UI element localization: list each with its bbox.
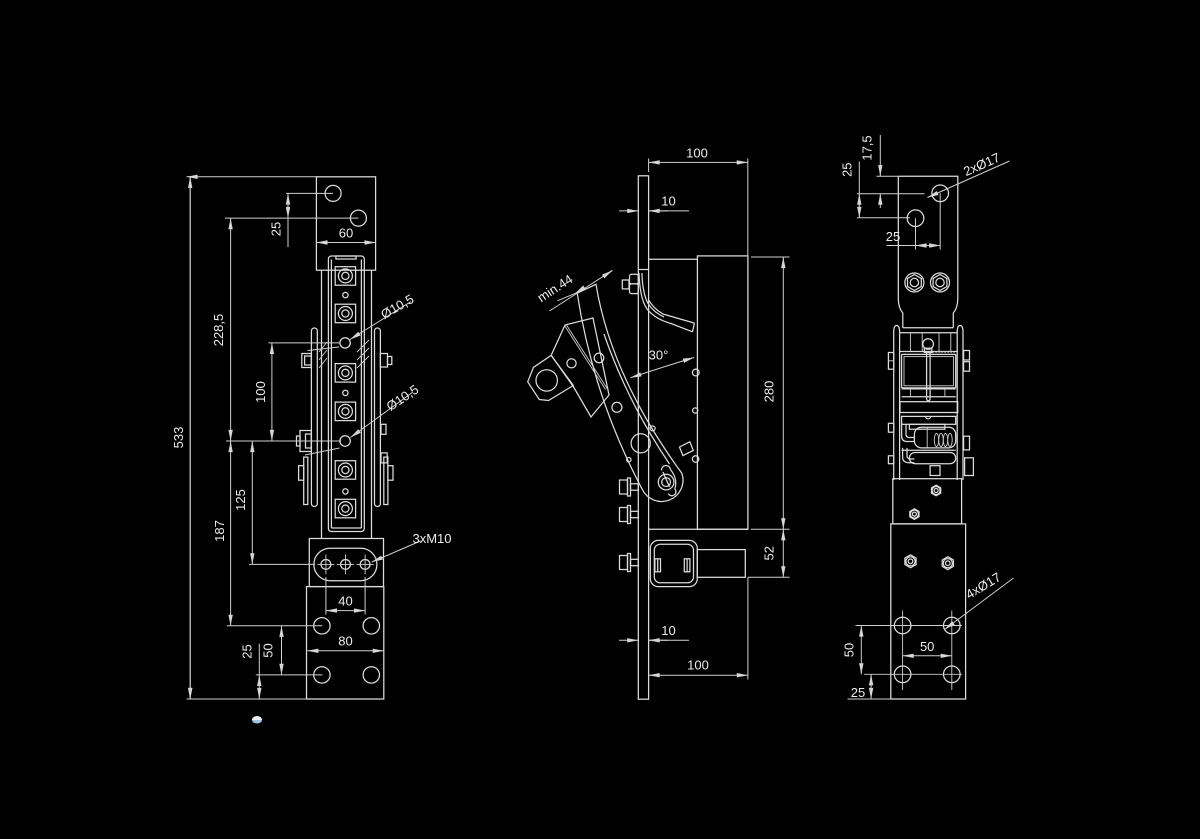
svg-text:17,5: 17,5 — [860, 135, 875, 160]
svg-text:25: 25 — [240, 644, 255, 658]
svg-text:50: 50 — [842, 643, 857, 657]
svg-text:30°: 30° — [649, 347, 669, 362]
svg-text:3xM10: 3xM10 — [412, 531, 451, 546]
svg-text:100: 100 — [253, 381, 268, 403]
svg-text:50: 50 — [920, 639, 934, 654]
svg-text:50: 50 — [261, 643, 276, 657]
svg-text:10: 10 — [661, 193, 675, 208]
svg-text:100: 100 — [687, 658, 709, 673]
svg-text:533: 533 — [171, 427, 186, 449]
svg-text:10: 10 — [661, 623, 675, 638]
svg-text:60: 60 — [339, 226, 353, 241]
svg-text:100: 100 — [686, 145, 708, 160]
svg-text:25: 25 — [851, 685, 865, 700]
svg-text:80: 80 — [338, 633, 352, 648]
svg-text:52: 52 — [762, 546, 777, 560]
svg-text:125: 125 — [233, 489, 248, 511]
svg-text:280: 280 — [762, 381, 777, 403]
svg-text:187: 187 — [212, 520, 227, 542]
svg-text:228,5: 228,5 — [211, 314, 226, 347]
svg-text:25: 25 — [886, 229, 900, 244]
svg-text:40: 40 — [338, 594, 352, 609]
svg-text:25: 25 — [269, 222, 284, 236]
svg-text:25: 25 — [840, 162, 855, 176]
